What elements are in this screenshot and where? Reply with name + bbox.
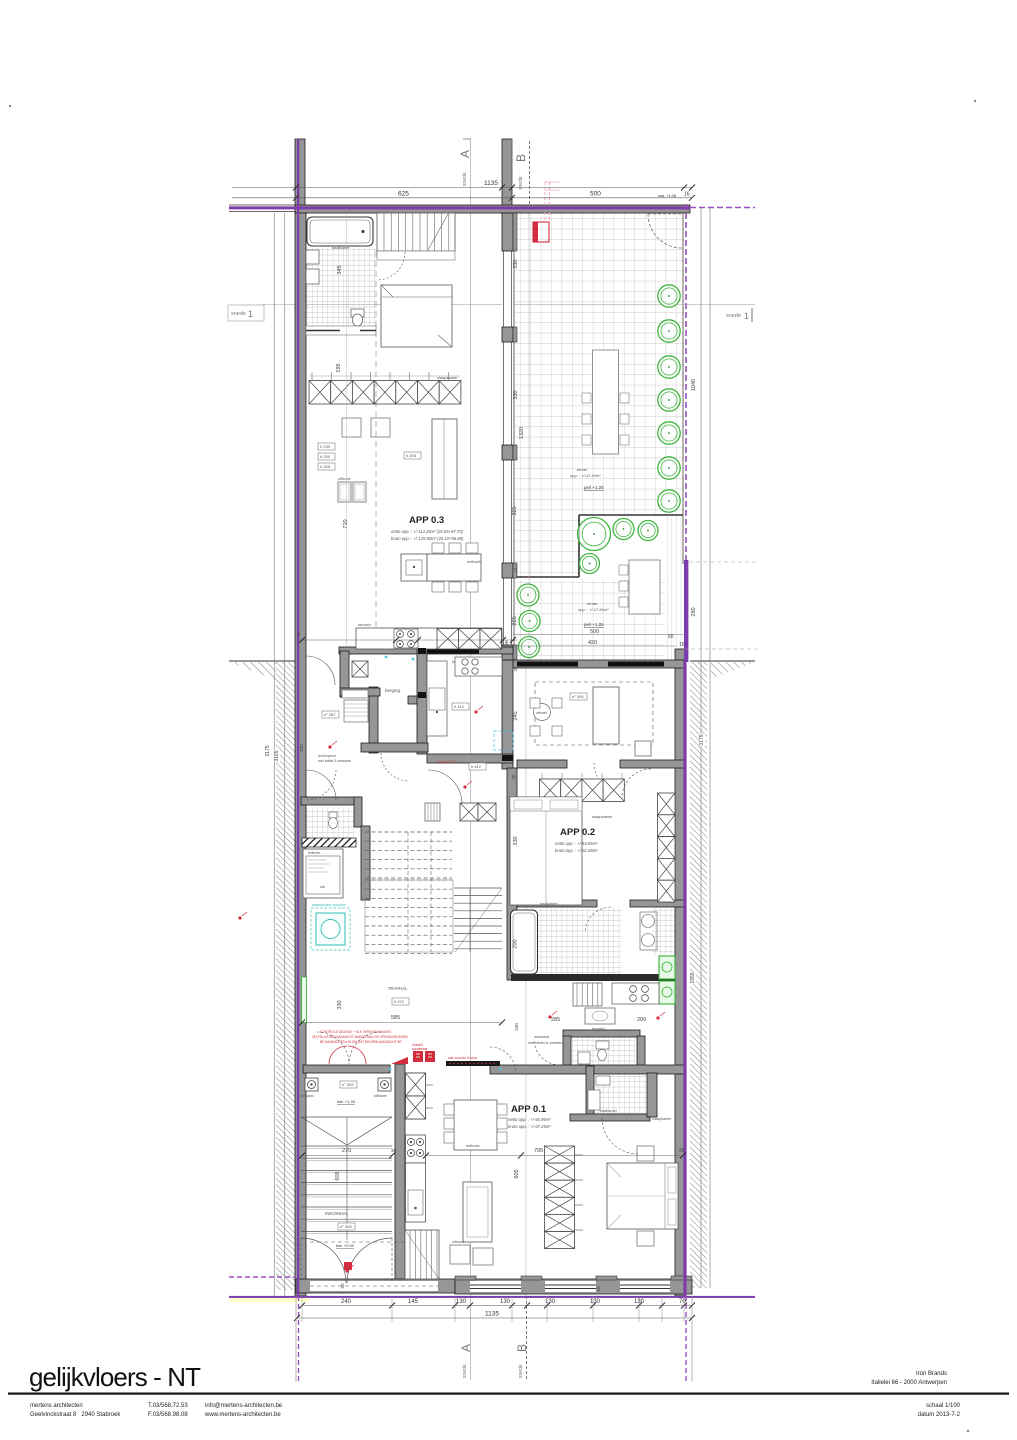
- svg-text:330: 330: [337, 1000, 343, 1009]
- svg-text:badkamer: badkamer: [332, 245, 350, 250]
- svg-text:F.03/568.98.08: F.03/568.98.08: [148, 1412, 188, 1418]
- svg-text:wasmachine voorzien: wasmachine voorzien: [312, 903, 346, 907]
- svg-text:T.03/568.72.53: T.03/568.72.53: [148, 1403, 188, 1409]
- svg-text:n° 302: n° 302: [342, 1082, 354, 1087]
- svg-text:130: 130: [545, 1299, 556, 1305]
- svg-text:eethoek: eethoek: [467, 559, 481, 564]
- svg-text:tafhaam: tafhaam: [301, 1094, 314, 1098]
- svg-text:zithoek: zithoek: [338, 476, 351, 481]
- svg-text:245: 245: [513, 711, 519, 720]
- svg-text:bruto opp. : +/-125.80m² (26.1: bruto opp. : +/-125.80m² (26.10+96.80): [391, 536, 464, 541]
- svg-text:APP 0.3: APP 0.3: [409, 515, 444, 526]
- svg-text:INKOMHAL: INKOMHAL: [325, 1211, 349, 1216]
- svg-text:130: 130: [590, 1299, 601, 1305]
- svg-text:keuken: keuken: [358, 622, 371, 627]
- svg-text:mertens architecten: mertens architecten: [30, 1403, 83, 1409]
- svg-text:zithoek: zithoek: [536, 711, 547, 715]
- svg-text:berging: berging: [592, 1027, 605, 1031]
- svg-text:APP 0.1: APP 0.1: [511, 1104, 547, 1115]
- svg-text:A: A: [459, 1344, 473, 1352]
- svg-text:zithoek: zithoek: [452, 1240, 464, 1244]
- svg-text:TRAPHAL: TRAPHAL: [388, 986, 408, 991]
- svg-text:20: 20: [296, 631, 301, 637]
- svg-text:ZELFSLUITEND AANDACHT MAKEN BA: ZELFSLUITEND AANDACHT MAKEN BAN DE OPENI…: [312, 1035, 408, 1039]
- svg-text:snede: snede: [518, 1364, 524, 1378]
- svg-text:90: 90: [511, 774, 516, 780]
- svg-text:285: 285: [551, 1017, 560, 1023]
- svg-text:35: 35: [391, 1148, 397, 1153]
- svg-text:45: 45: [513, 666, 518, 672]
- svg-text:inkomhal: inkomhal: [534, 1035, 549, 1039]
- svg-text:badkamer: badkamer: [540, 901, 558, 906]
- svg-text:terras: terras: [577, 467, 587, 472]
- svg-text:BE AANDACHTELIJK OM DAT DEUREN: BE AANDACHTELIJK OM DAT DEUREN AANDACHT …: [320, 1040, 402, 1044]
- svg-text:B: B: [514, 154, 528, 162]
- svg-text:130: 130: [634, 1299, 645, 1305]
- svg-text:eethoek: eethoek: [466, 1144, 480, 1148]
- svg-text:APP 0.2: APP 0.2: [560, 827, 595, 838]
- svg-text:3175: 3175: [265, 745, 271, 756]
- svg-text:snede: snede: [726, 313, 741, 319]
- svg-text:met tablet & vestiaire: met tablet & vestiaire: [528, 1041, 563, 1045]
- svg-text:snede: snede: [462, 1364, 468, 1378]
- svg-text:bat. +0.00: bat. +0.00: [336, 1243, 355, 1248]
- svg-text:1: 1: [744, 311, 749, 321]
- svg-text:25: 25: [679, 1148, 685, 1154]
- svg-text:netto opp. : +/-56.95m²: netto opp. : +/-56.95m²: [508, 1117, 551, 1122]
- svg-text:h 205: h 205: [320, 464, 331, 469]
- svg-text:16: 16: [684, 192, 690, 198]
- svg-text:slaapkamer: slaapkamer: [652, 1117, 672, 1121]
- svg-text:16: 16: [679, 642, 685, 648]
- svg-text:h 470: h 470: [394, 999, 405, 1004]
- svg-text:berging: berging: [385, 688, 401, 693]
- svg-text:420: 420: [588, 640, 597, 646]
- svg-text:opp. : +/-17.59m²: opp. : +/-17.59m²: [578, 607, 609, 612]
- svg-text:Italielei 66 - 2000 Antwerpen: Italielei 66 - 2000 Antwerpen: [871, 1380, 947, 1386]
- svg-text:1320: 1320: [519, 427, 525, 439]
- svg-text:330: 330: [513, 259, 519, 268]
- svg-text:tellerlok.: tellerlok.: [308, 851, 321, 855]
- svg-text:bat. +1.33: bat. +1.33: [337, 1099, 356, 1104]
- svg-text:datum 2013-7-2: datum 2013-7-2: [918, 1412, 961, 1418]
- svg-text:130: 130: [456, 1299, 467, 1305]
- svg-text:snede: snede: [462, 172, 468, 186]
- svg-text:badkamer: badkamer: [600, 1109, 618, 1113]
- svg-text:B: B: [515, 1344, 529, 1352]
- svg-text:vast +B.10: vast +B.10: [437, 760, 455, 764]
- svg-text:h 230: h 230: [320, 444, 331, 449]
- svg-text:opp. : +/-47.40m²: opp. : +/-47.40m²: [570, 473, 601, 478]
- svg-text:schakelaar: schakelaar: [412, 1047, 428, 1051]
- svg-text:130: 130: [500, 1299, 511, 1305]
- svg-text:195: 195: [336, 363, 342, 372]
- svg-text:1040: 1040: [691, 379, 697, 391]
- svg-text:605: 605: [514, 1169, 520, 1178]
- svg-text:200: 200: [513, 939, 519, 948]
- svg-text:tafhaam: tafhaam: [374, 1094, 387, 1098]
- svg-text:mat voorzien in vloer: mat voorzien in vloer: [448, 1056, 478, 1060]
- svg-text:snede: snede: [231, 311, 246, 317]
- svg-text:info@mertens-architecten.be: info@mertens-architecten.be: [205, 1403, 283, 1409]
- svg-text:270: 270: [342, 1148, 351, 1154]
- svg-text:330: 330: [513, 390, 519, 399]
- svg-text:peil +1.25: peil +1.25: [584, 485, 604, 490]
- svg-text:terras: terras: [587, 601, 597, 606]
- svg-text:n° 287: n° 287: [324, 712, 336, 717]
- svg-text:zad. +1.08: zad. +1.08: [658, 194, 676, 198]
- svg-text:slaapkamer: slaapkamer: [437, 375, 458, 380]
- svg-text:90: 90: [504, 640, 509, 646]
- svg-text:3175: 3175: [699, 734, 705, 745]
- svg-text:145: 145: [408, 1299, 419, 1305]
- svg-text:280: 280: [691, 607, 697, 616]
- svg-text:200: 200: [637, 1017, 646, 1023]
- svg-text:h 412: h 412: [454, 704, 465, 709]
- svg-text:710: 710: [343, 519, 349, 528]
- svg-text:h 205: h 205: [406, 453, 417, 458]
- svg-text:1135: 1135: [484, 180, 498, 187]
- svg-text:3165: 3165: [274, 750, 280, 761]
- svg-text:325: 325: [512, 506, 518, 515]
- svg-text:230: 230: [299, 744, 304, 752]
- svg-text:Iron Brands: Iron Brands: [916, 1371, 947, 1377]
- svg-text:CONTROLE DEURGE + KLK VERHGEN: CONTROLE DEURGE + KLK VERHGEN MAKEN: [320, 1030, 391, 1034]
- svg-text:225: 225: [512, 616, 518, 625]
- svg-text:50: 50: [596, 1286, 601, 1292]
- svg-text:1855: 1855: [690, 972, 696, 983]
- svg-text:n° 308: n° 308: [340, 1224, 352, 1229]
- svg-text:A: A: [458, 150, 472, 158]
- svg-text:snede: snede: [518, 176, 524, 190]
- svg-text:1: 1: [248, 309, 253, 319]
- svg-text:240: 240: [341, 1299, 352, 1305]
- svg-text:schaal 1/100: schaal 1/100: [926, 1403, 961, 1409]
- svg-text:n° 306: n° 306: [572, 694, 584, 699]
- svg-text:500: 500: [590, 629, 599, 635]
- svg-text:345: 345: [337, 265, 343, 274]
- svg-text:585: 585: [391, 1015, 400, 1021]
- svg-text:50: 50: [340, 1283, 345, 1289]
- svg-text:bruto opp. : +/-61.85m²: bruto opp. : +/-61.85m²: [555, 848, 598, 853]
- svg-text:wk: wk: [320, 884, 325, 889]
- svg-text:peil +1.25: peil +1.25: [584, 622, 604, 627]
- svg-text:795: 795: [534, 1148, 543, 1154]
- svg-text:doorlopend: doorlopend: [318, 754, 336, 758]
- svg-text:10: 10: [513, 567, 518, 572]
- svg-text:www.mertens-architecten.be: www.mertens-architecten.be: [204, 1412, 281, 1418]
- svg-text:gelijkvloers - NT: gelijkvloers - NT: [29, 1362, 201, 1392]
- svg-text:bruto opp. : +/-67.25m²: bruto opp. : +/-67.25m²: [508, 1124, 551, 1129]
- svg-text:500: 500: [590, 191, 601, 198]
- svg-text:slaapkamer: slaapkamer: [592, 814, 613, 819]
- svg-text:1135: 1135: [485, 1311, 499, 1318]
- svg-text:h 412: h 412: [471, 764, 482, 769]
- svg-text:met tablet & vestiaire: met tablet & vestiaire: [318, 759, 351, 763]
- svg-text:Geelvinckstraat 8 2940 Stabr: Geelvinckstraat 8 2940 Stabroek: [30, 1412, 121, 1418]
- svg-text:625: 625: [398, 191, 409, 198]
- svg-text:240: 240: [514, 1023, 519, 1031]
- svg-text:netto opp. : +/-54.85m²: netto opp. : +/-54.85m²: [555, 841, 598, 846]
- svg-text:330: 330: [513, 836, 519, 845]
- svg-text:h 200: h 200: [320, 454, 331, 459]
- svg-text:50: 50: [668, 634, 674, 640]
- svg-text:netto opp. : +/-113.25m² (26.5: netto opp. : +/-113.25m² (26.55+87.70): [391, 529, 463, 534]
- svg-text:605: 605: [335, 1171, 341, 1180]
